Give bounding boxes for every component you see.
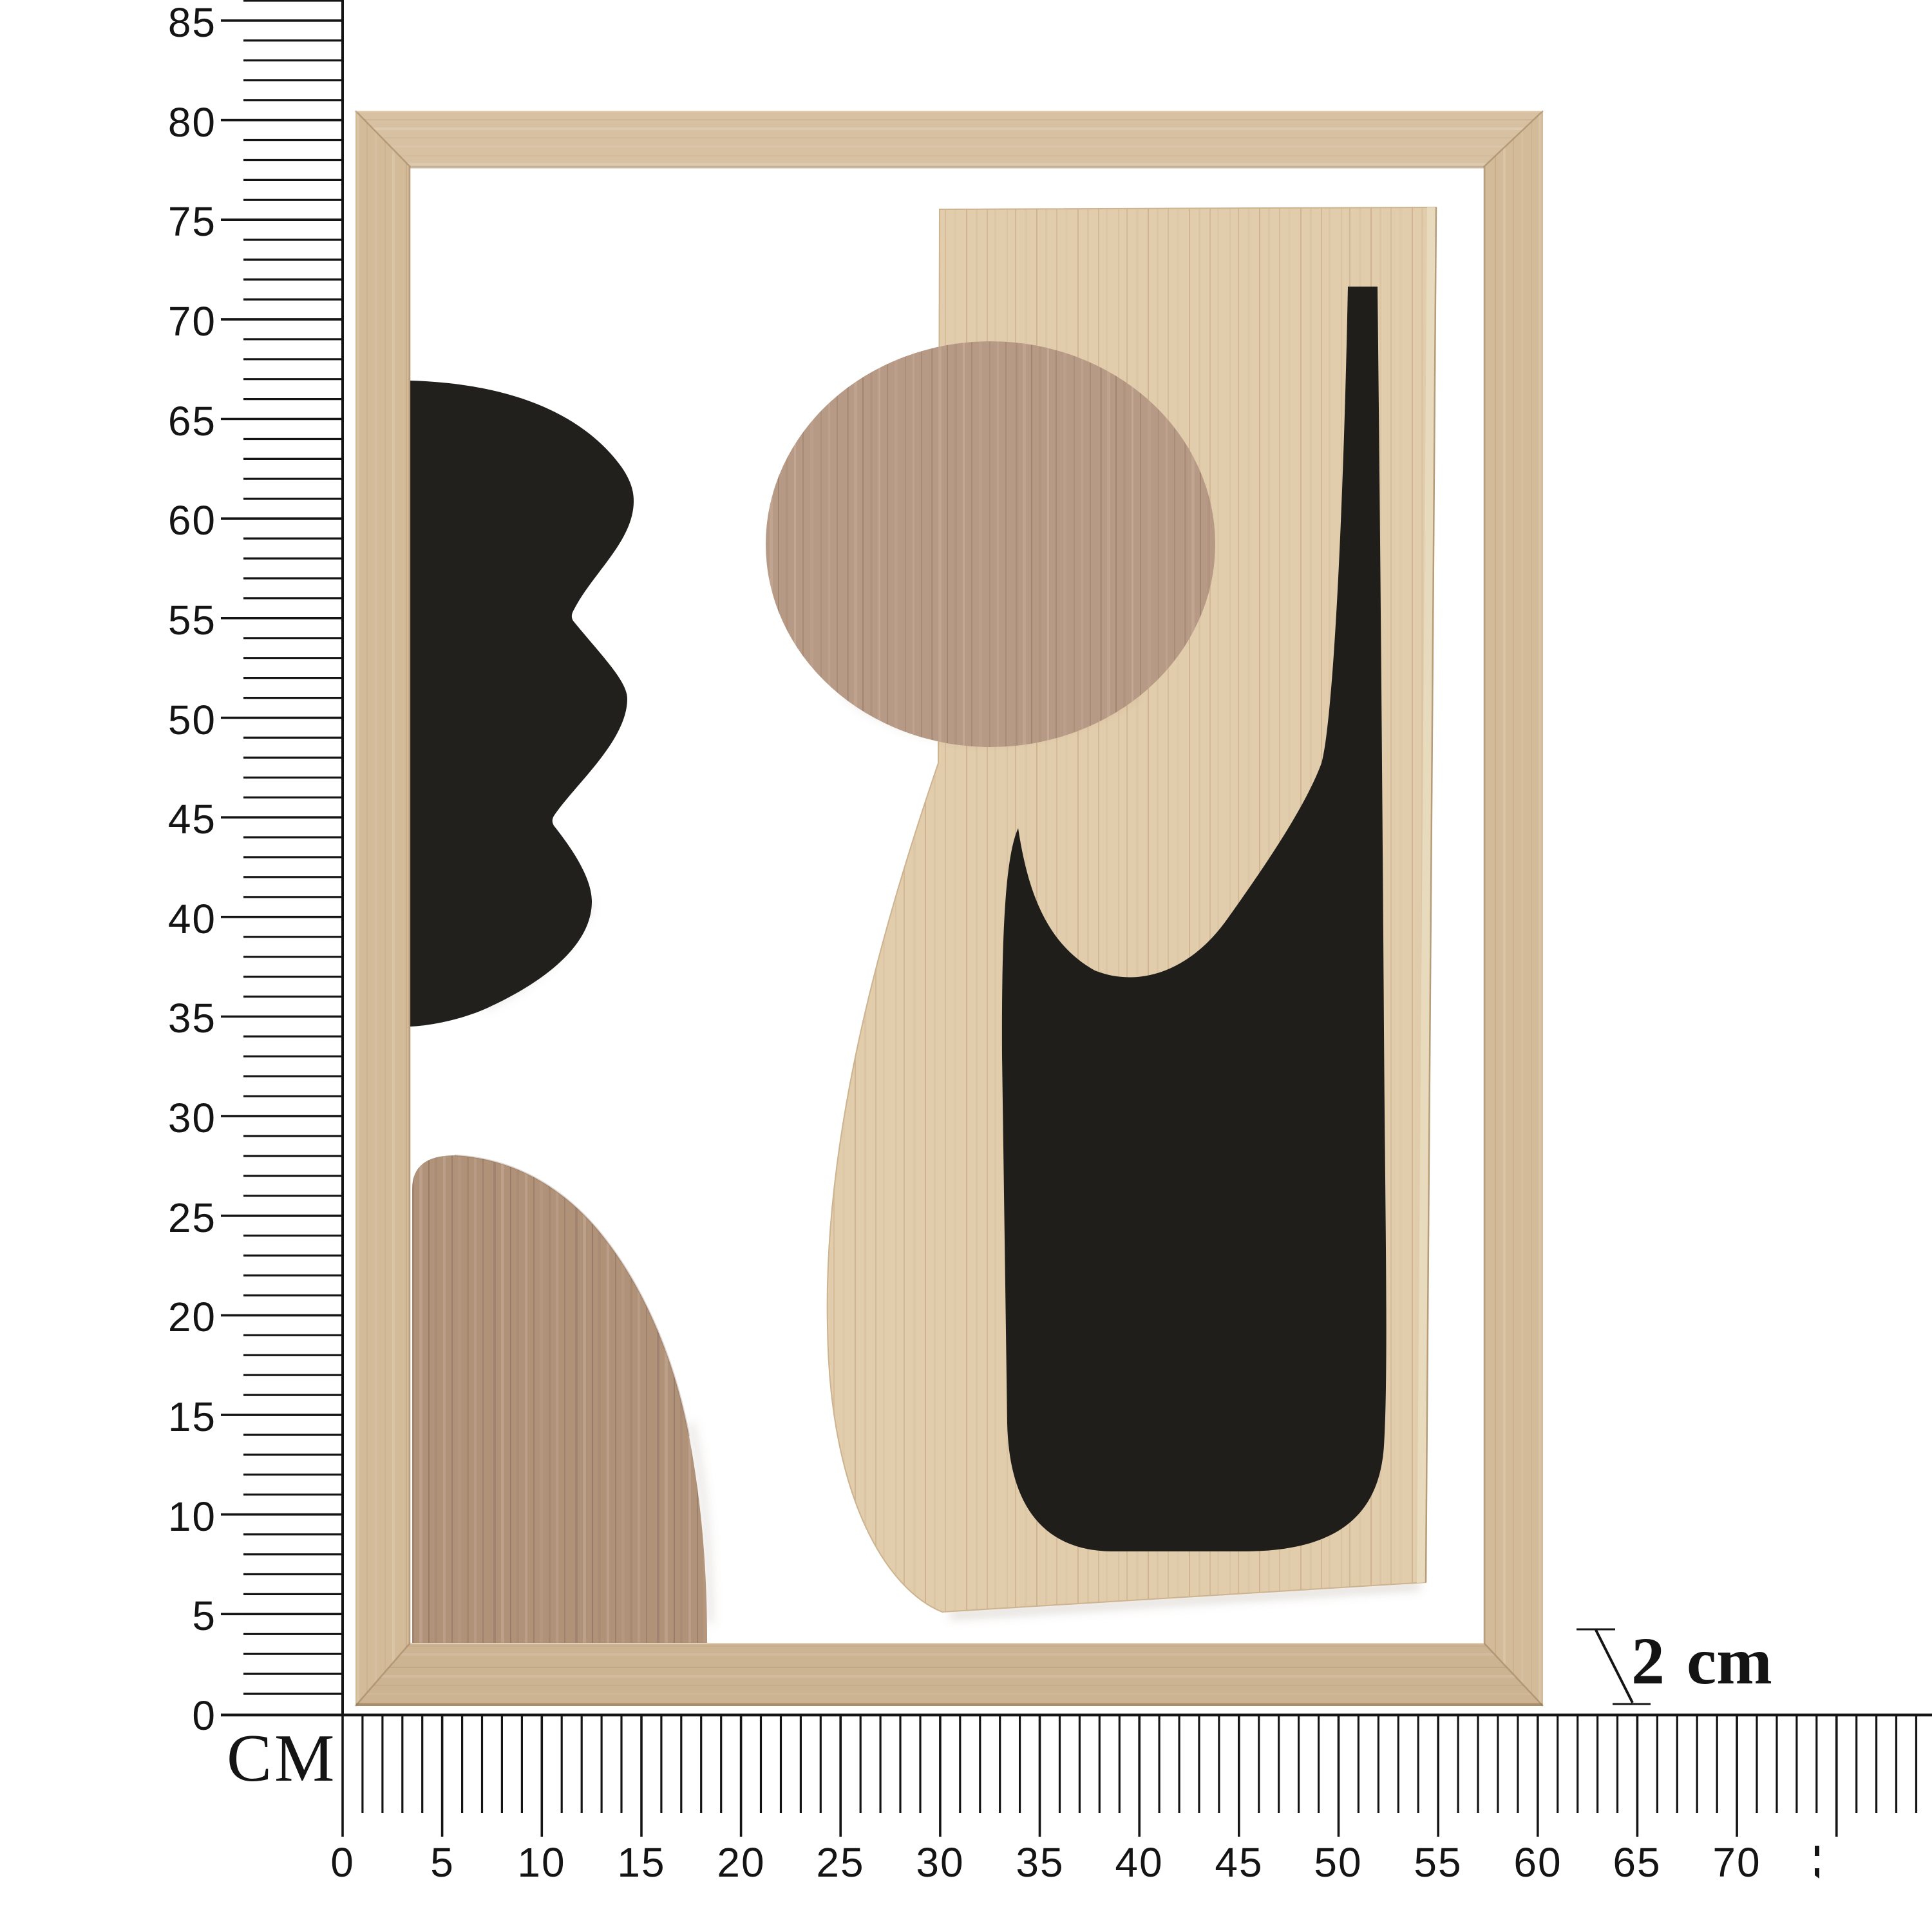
svg-text:CM: CM	[227, 1720, 337, 1795]
svg-text:85: 85	[168, 0, 216, 46]
svg-text:50: 50	[168, 697, 216, 743]
svg-text:60: 60	[168, 497, 216, 544]
svg-text:30: 30	[168, 1095, 216, 1141]
svg-text:5: 5	[430, 1839, 455, 1886]
svg-text:2cm: 2cm	[1631, 1624, 1772, 1698]
svg-text:55: 55	[168, 597, 216, 643]
svg-text:5: 5	[192, 1593, 216, 1639]
svg-text:35: 35	[1016, 1839, 1064, 1886]
svg-text:45: 45	[1215, 1839, 1263, 1886]
svg-text:65: 65	[168, 398, 216, 444]
svg-text:80: 80	[168, 99, 216, 146]
svg-text:0: 0	[192, 1692, 216, 1739]
svg-text:70: 70	[168, 298, 216, 345]
svg-text:50: 50	[1314, 1839, 1362, 1886]
svg-text:40: 40	[1115, 1839, 1163, 1886]
svg-text:35: 35	[168, 995, 216, 1041]
svg-text:65: 65	[1613, 1839, 1661, 1886]
svg-text:25: 25	[168, 1195, 216, 1241]
svg-text:0: 0	[330, 1839, 355, 1886]
svg-text:15: 15	[617, 1839, 665, 1886]
svg-text:45: 45	[168, 796, 216, 842]
svg-text:75: 75	[168, 198, 216, 245]
svg-text:60: 60	[1513, 1839, 1562, 1886]
svg-text:10: 10	[517, 1839, 565, 1886]
svg-text:25: 25	[816, 1839, 864, 1886]
svg-text:10: 10	[168, 1493, 216, 1540]
svg-text:30: 30	[916, 1839, 964, 1886]
svg-text:20: 20	[717, 1839, 765, 1886]
svg-text:55: 55	[1414, 1839, 1462, 1886]
svg-text:40: 40	[168, 896, 216, 942]
svg-text:20: 20	[168, 1294, 216, 1340]
svg-text:70: 70	[1712, 1839, 1761, 1886]
svg-text:15: 15	[168, 1394, 216, 1440]
